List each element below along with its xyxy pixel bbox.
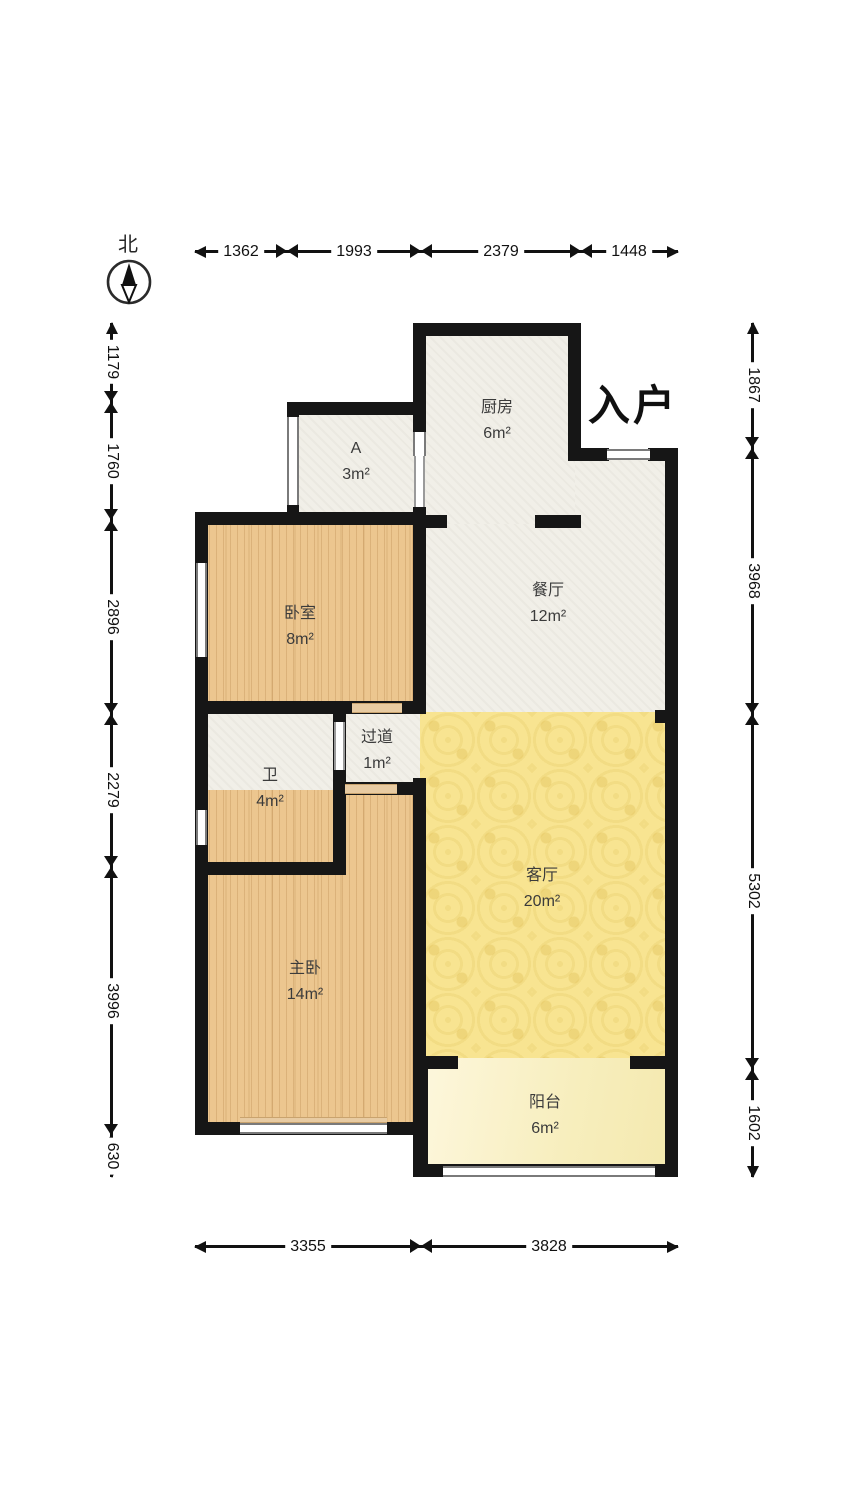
kitchen-name: 厨房 xyxy=(481,395,513,421)
wall-spine-upper xyxy=(413,323,426,432)
door-master-bedroom xyxy=(345,784,397,794)
door-bathroom xyxy=(334,722,345,770)
kitchen-area: 6m² xyxy=(481,421,513,447)
window-entry-door xyxy=(607,449,650,460)
wall-balcony-top-left xyxy=(413,1056,458,1069)
dim-label: 1179 xyxy=(103,340,121,384)
bathroom-label: 卫 4m² xyxy=(256,763,284,815)
dim-line-left: 1179 1760 2896 2279 3996 630 xyxy=(110,323,113,1177)
dim-label: 2279 xyxy=(103,767,121,813)
window-spine-pass xyxy=(413,432,426,456)
dim-label: 1602 xyxy=(744,1100,762,1146)
room-a-name: A xyxy=(342,436,370,462)
living-label: 客厅 20m² xyxy=(524,863,560,915)
dim-label: 3996 xyxy=(103,978,121,1024)
entrance-label: 入户 xyxy=(588,372,678,433)
dim-label: 2379 xyxy=(478,243,524,261)
dim-label: 3355 xyxy=(285,1238,331,1256)
arrow-left-icon xyxy=(194,246,206,258)
arrow-left-icon xyxy=(194,1241,206,1253)
window-bathroom xyxy=(196,810,207,845)
bedroom-label: 卧室 8m² xyxy=(284,601,316,653)
dining-label: 餐厅 12m² xyxy=(530,578,566,630)
arrow-right-icon xyxy=(667,246,679,258)
kitchen-label: 厨房 6m² xyxy=(481,395,513,447)
dim-label: 1362 xyxy=(218,243,264,261)
dim-line-right: 1867 3968 5302 1602 xyxy=(751,323,754,1177)
door-kitchen xyxy=(414,456,425,507)
dining-name: 餐厅 xyxy=(530,578,566,604)
arrow-up-icon xyxy=(747,322,759,334)
bathroom-area: 4m² xyxy=(256,789,284,815)
dining-area: 12m² xyxy=(530,604,566,630)
compass-icon xyxy=(105,258,153,311)
master-bedroom-label: 主卧 14m² xyxy=(287,956,323,1008)
arrow-up-icon xyxy=(106,322,118,334)
wall-balcony-left xyxy=(413,1056,428,1177)
master-bedroom-name: 主卧 xyxy=(287,956,323,982)
wall-spine-mid xyxy=(413,507,426,714)
wall-kitchen-top xyxy=(413,323,581,336)
window-balcony xyxy=(443,1166,655,1177)
wall-balcony-top-right xyxy=(630,1056,678,1069)
dim-label: 630 xyxy=(103,1138,121,1175)
master-bedroom-area: 14m² xyxy=(287,982,323,1008)
dim-label: 1867 xyxy=(744,362,762,408)
dim-label: 5302 xyxy=(744,868,762,914)
hallway-name: 过道 xyxy=(361,725,393,751)
door-bedroom xyxy=(352,703,402,713)
dim-label: 1448 xyxy=(606,243,652,261)
wall-bedroom-top xyxy=(195,512,426,525)
bathroom-name: 卫 xyxy=(256,763,284,789)
wall-kitchen-right xyxy=(568,323,581,461)
room-a-label: A 3m² xyxy=(342,436,370,488)
arrow-down-icon xyxy=(747,1166,759,1178)
window-room-a xyxy=(287,417,299,505)
living-area: 20m² xyxy=(524,889,560,915)
arrow-right-icon xyxy=(667,1241,679,1253)
dim-label: 2896 xyxy=(103,594,121,640)
bedroom-name: 卧室 xyxy=(284,601,316,627)
window-master-bedroom xyxy=(240,1123,387,1134)
bedroom-area: 8m² xyxy=(284,627,316,653)
wall-kitchen-bottom-right xyxy=(535,515,581,528)
floor-plan: 厨房 6m² A 3m² 卧室 8m² 餐厅 12m² 过道 1m² 卫 4m²… xyxy=(0,0,868,1499)
balcony-label: 阳台 6m² xyxy=(529,1090,561,1142)
hallway-label: 过道 1m² xyxy=(361,725,393,777)
hallway-area: 1m² xyxy=(361,751,393,777)
dim-label: 3968 xyxy=(744,558,762,604)
window-bedroom xyxy=(196,563,207,657)
living-name: 客厅 xyxy=(524,863,560,889)
room-a-area: 3m² xyxy=(342,462,370,488)
wall-entry-left xyxy=(568,448,609,461)
balcony-name: 阳台 xyxy=(529,1090,561,1116)
dim-label: 3828 xyxy=(526,1238,572,1256)
dim-label: 1993 xyxy=(331,243,377,261)
dim-line-bottom: 3355 3828 xyxy=(195,1245,678,1248)
north-label: 北 xyxy=(100,228,156,257)
balcony-area: 6m² xyxy=(529,1116,561,1142)
wall-room-a-top xyxy=(287,402,426,415)
wall-living-dining-stub xyxy=(655,710,668,723)
dim-label: 1760 xyxy=(103,438,121,484)
dim-line-top: 1362 1993 2379 1448 xyxy=(195,250,678,253)
wall-bathroom-bottom xyxy=(195,862,346,875)
